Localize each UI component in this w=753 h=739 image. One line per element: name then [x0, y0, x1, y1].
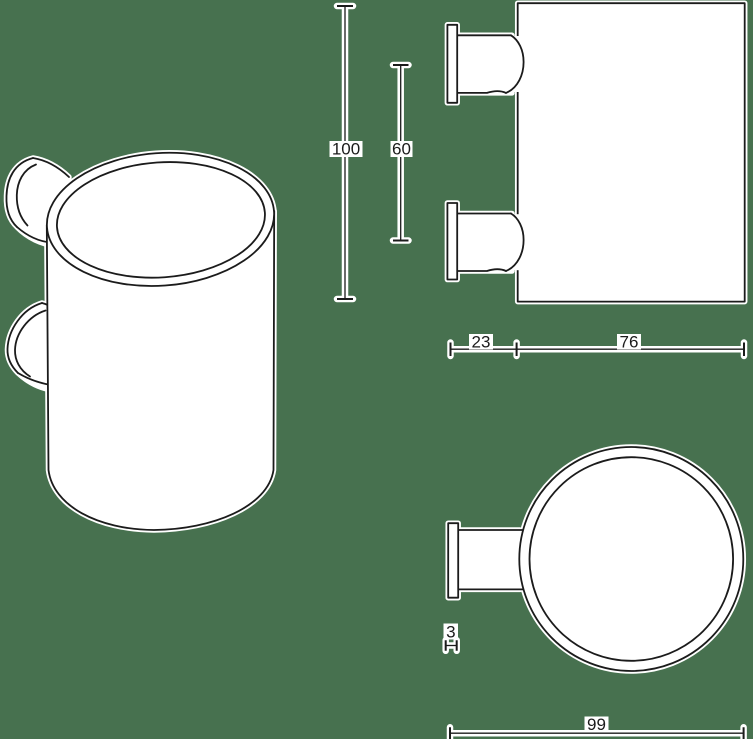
arm-fill — [457, 36, 522, 92]
arm-fill — [457, 531, 523, 589]
dim-label-76: 76 — [620, 333, 639, 352]
dimension-depth-width: 23 76 — [451, 333, 745, 357]
wall-plate — [448, 523, 458, 598]
wall-plate — [447, 203, 457, 280]
technical-drawing: 100 60 23 76 3 — [0, 0, 753, 739]
side-lower-bracket — [447, 203, 523, 280]
drawing-canvas: 100 60 23 76 3 — [0, 0, 753, 739]
dimension-plate-thickness: 3 — [444, 623, 459, 651]
cup-top-outer — [519, 447, 743, 671]
dimension-cup-height: 100 — [330, 6, 363, 299]
wall-plate — [447, 25, 457, 103]
isometric-view — [6, 145, 278, 530]
dimension-overall-depth: 99 — [450, 715, 744, 739]
lower-mounting-bracket — [7, 303, 52, 390]
arm-fill — [457, 214, 522, 270]
top-view — [448, 447, 743, 671]
side-view — [447, 3, 744, 301]
dim-label-23: 23 — [472, 333, 491, 352]
cup-side-profile — [518, 3, 745, 301]
dimension-bracket-spacing: 60 — [391, 65, 413, 241]
dim-label-99: 99 — [587, 715, 606, 734]
side-upper-bracket — [447, 25, 523, 103]
dim-label-3: 3 — [446, 623, 455, 642]
dim-label-100: 100 — [332, 140, 360, 159]
dim-label-60: 60 — [392, 140, 411, 159]
